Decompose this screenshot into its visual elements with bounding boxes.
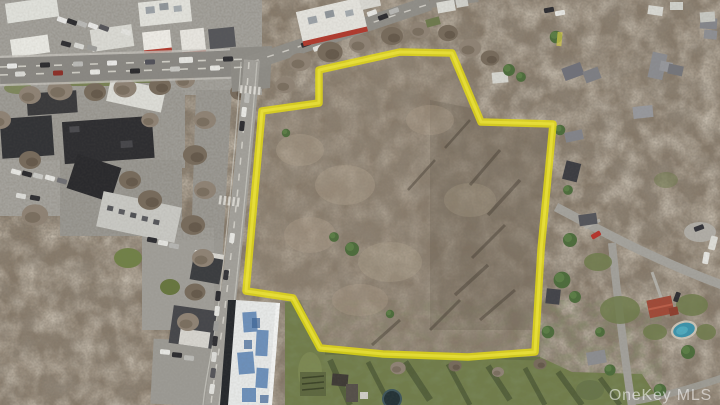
aerial-photo-frame: OneKey MLS [0,0,720,405]
watermark-text: OneKey MLS [609,387,712,404]
aerial-photo: OneKey MLS [0,0,720,405]
